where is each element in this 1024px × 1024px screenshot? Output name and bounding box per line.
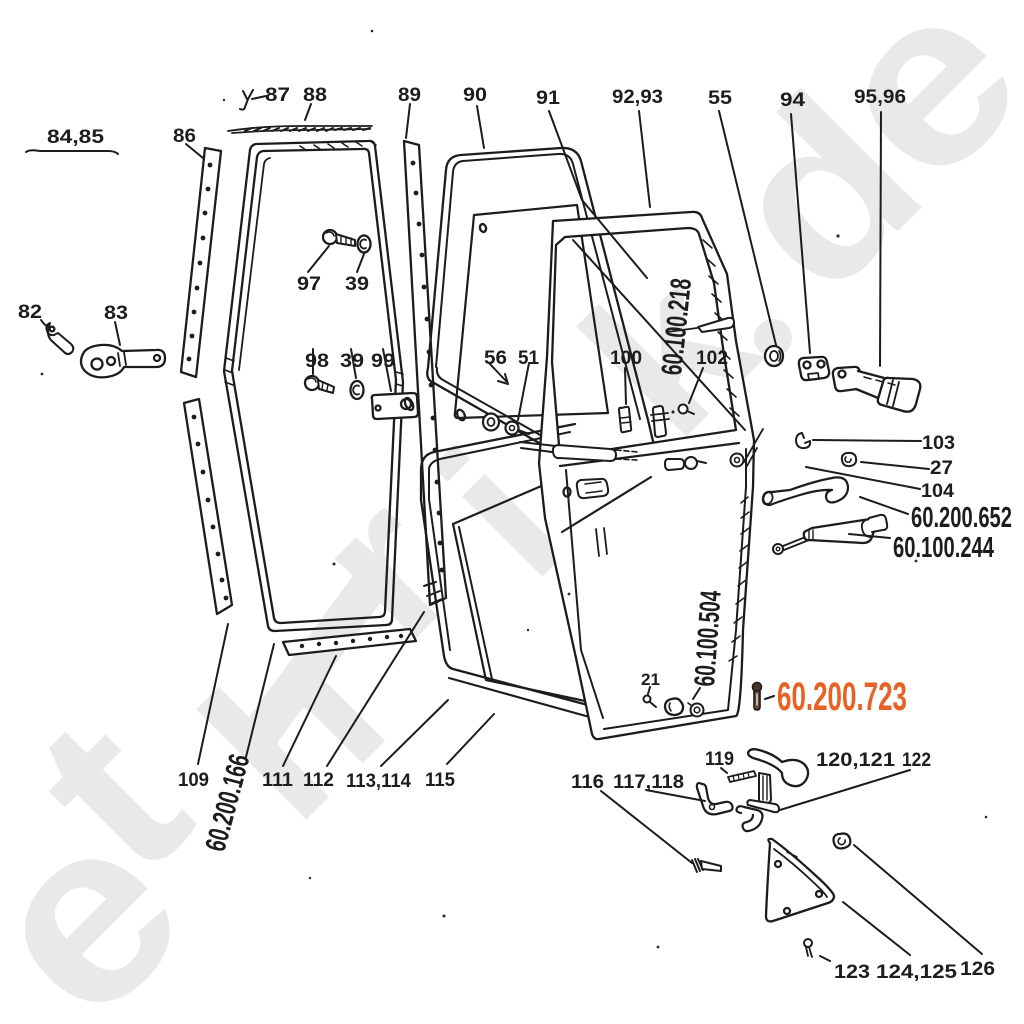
- svg-text:39: 39: [345, 274, 369, 295]
- svg-text:84,85: 84,85: [47, 127, 105, 148]
- svg-text:60.200.652: 60.200.652: [911, 502, 1012, 534]
- svg-text:98: 98: [305, 351, 329, 372]
- svg-text:115: 115: [425, 770, 455, 791]
- svg-text:120,121: 120,121: [816, 750, 895, 771]
- svg-text:119: 119: [705, 749, 734, 770]
- svg-text:94: 94: [780, 90, 806, 111]
- svg-text:51: 51: [518, 348, 539, 369]
- svg-text:90: 90: [463, 85, 487, 106]
- svg-text:27: 27: [930, 458, 953, 479]
- svg-text:112: 112: [303, 770, 334, 791]
- svg-text:122: 122: [902, 750, 931, 771]
- svg-text:124,125: 124,125: [876, 962, 958, 983]
- svg-text:109: 109: [178, 770, 209, 791]
- svg-text:99: 99: [371, 351, 395, 372]
- svg-text:91: 91: [536, 88, 560, 109]
- svg-text:117,118: 117,118: [613, 772, 684, 793]
- svg-text:60.200.723: 60.200.723: [777, 675, 907, 719]
- svg-text:97: 97: [297, 274, 321, 295]
- svg-text:89: 89: [398, 85, 421, 106]
- svg-text:60.100.504: 60.100.504: [689, 589, 728, 687]
- svg-text:123: 123: [834, 962, 870, 983]
- svg-text:56: 56: [484, 348, 507, 369]
- svg-text:100: 100: [610, 348, 642, 369]
- svg-text:126: 126: [960, 959, 995, 980]
- svg-text:60.100.244: 60.100.244: [893, 532, 994, 564]
- svg-text:86: 86: [173, 126, 196, 147]
- svg-text:39: 39: [340, 351, 364, 372]
- svg-text:92,93: 92,93: [612, 87, 663, 108]
- svg-text:21: 21: [641, 670, 660, 689]
- svg-text:102: 102: [696, 348, 728, 369]
- svg-text:88: 88: [303, 85, 327, 106]
- svg-text:116: 116: [571, 772, 604, 793]
- svg-text:95,96: 95,96: [854, 87, 906, 108]
- svg-text:104: 104: [921, 481, 954, 502]
- svg-text:87: 87: [265, 85, 290, 106]
- svg-text:103: 103: [922, 433, 955, 454]
- svg-text:111: 111: [262, 770, 293, 791]
- svg-text:83: 83: [104, 303, 128, 324]
- svg-text:55: 55: [708, 88, 732, 109]
- svg-text:113,114: 113,114: [346, 771, 411, 792]
- svg-text:82: 82: [18, 302, 42, 323]
